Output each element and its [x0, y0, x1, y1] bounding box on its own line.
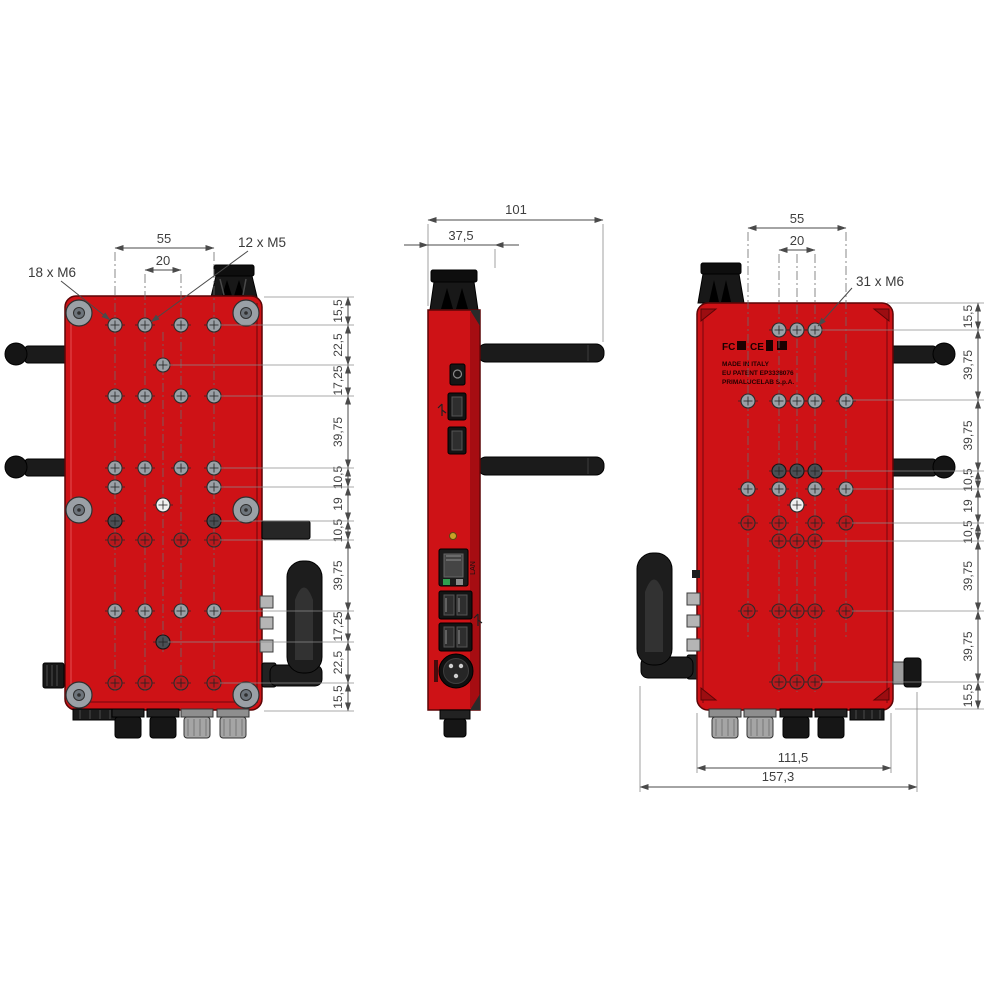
side-bracket	[262, 521, 310, 539]
dimension-label: 20	[790, 233, 804, 248]
dimension-label: 101	[505, 202, 527, 217]
usb-dual-block	[439, 623, 472, 651]
port-marking	[434, 660, 438, 682]
fcc-mark: FC	[722, 342, 735, 353]
knob-body	[211, 276, 257, 297]
dimension-label: 37,5	[448, 228, 473, 243]
cert-glyph	[737, 341, 746, 350]
bottom-connector-gray	[181, 709, 213, 738]
chain-dimension-label: 15,5	[331, 685, 345, 709]
bottom-connector-black	[112, 709, 144, 738]
bottom-connector-gray	[217, 709, 249, 738]
aux-port	[450, 364, 465, 385]
technical-drawing-canvas: LAN	[0, 0, 1000, 1000]
handle-ball	[933, 343, 955, 365]
back-view: FC CE MADE IN ITALY EU PATENT EP3338076 …	[637, 232, 955, 738]
bottom-connector-side	[440, 710, 470, 719]
usb-dual-block	[439, 591, 472, 619]
cert-glyph	[766, 340, 773, 351]
thread-callout-31xM6: 31 x M6	[856, 274, 904, 289]
chain-dimension-label: 39,75	[961, 561, 975, 591]
chain-dimension-label: 22,5	[331, 650, 345, 674]
power-pin	[459, 664, 463, 668]
antenna-highlight	[295, 588, 313, 661]
bottom-connector-gray	[709, 709, 741, 738]
side-nub	[692, 570, 700, 578]
knob-cap	[431, 270, 477, 282]
usb-slot	[452, 431, 462, 450]
handle-ball	[933, 456, 955, 478]
chain-dimension-label: 10,5	[331, 465, 345, 489]
chain-dimension-label: 10,5	[331, 518, 345, 542]
chain-dimension-label: 22,5	[331, 333, 345, 357]
power-connector-ring	[444, 659, 469, 684]
power-pin	[449, 664, 453, 668]
dimension-label: 157,3	[762, 769, 795, 784]
corner-bolt-center	[244, 693, 248, 697]
handle-rod-side	[478, 344, 604, 362]
chain-dimension-label: 10,5	[961, 520, 975, 544]
marking-company: PRIMALUCELAB S.p.A.	[722, 379, 794, 386]
knob-cap	[701, 263, 741, 274]
power-pin	[454, 674, 458, 678]
chain-dimension-label: 15,5	[961, 304, 975, 328]
lan-led-gray	[456, 579, 463, 585]
knob-cap	[214, 265, 254, 276]
handle-rod-side	[478, 457, 604, 475]
chain-dimension-label: 15,5	[961, 683, 975, 707]
marking-patent: EU PATENT EP3338076	[722, 370, 794, 377]
lan-led-green	[443, 579, 450, 585]
bottom-left-connector	[43, 663, 64, 688]
drawing-svg: LAN	[0, 0, 1000, 1000]
cert-glyph	[777, 341, 787, 350]
usb-slot	[452, 397, 462, 416]
chain-dimension-label: 39,75	[331, 560, 345, 590]
antenna-highlight	[645, 580, 663, 653]
thread-callout-12xM5: 12 x M5	[238, 235, 286, 250]
chain-dimension-label: 17,25	[331, 365, 345, 395]
chain-dimension-label: 19	[331, 497, 345, 511]
right-connector-body	[904, 658, 921, 687]
knob-body	[698, 274, 744, 303]
handle-rod	[890, 459, 936, 476]
handle-rod	[890, 346, 936, 363]
corner-bolt-center	[244, 508, 248, 512]
bottom-connector-side	[444, 719, 466, 737]
side-view: LAN	[428, 270, 604, 737]
bottom-strip	[850, 709, 884, 720]
handle-ball	[5, 456, 27, 478]
lan-label: LAN	[470, 561, 477, 575]
right-connector-flange	[893, 662, 904, 684]
handle-rod	[25, 346, 69, 363]
chain-dimension-label: 39,75	[331, 417, 345, 447]
power-led	[450, 533, 457, 540]
knob-body	[430, 282, 478, 310]
ce-mark: CE	[750, 342, 764, 353]
side-connector	[687, 593, 700, 605]
bottom-connector-gray	[744, 709, 776, 738]
dimension-label: 111,5	[778, 750, 809, 765]
chain-dimension-label: 15,5	[331, 299, 345, 323]
corner-bolt-center	[77, 311, 81, 315]
chain-dimension-label: 39,75	[961, 631, 975, 661]
marking-made-in: MADE IN ITALY	[722, 361, 770, 368]
handle-rod	[25, 459, 69, 476]
chain-dimension-label: 19	[961, 499, 975, 513]
corner-bolt-center	[244, 311, 248, 315]
thread-callout-18xM6: 18 x M6	[28, 265, 76, 280]
dimension-label: 20	[156, 253, 170, 268]
side-connector	[687, 639, 700, 651]
bottom-connector-black	[147, 709, 179, 738]
corner-bolt-center	[77, 508, 81, 512]
dimension-label: 55	[157, 231, 171, 246]
side-connector	[260, 617, 273, 629]
chain-dimension-label: 10,5	[961, 468, 975, 492]
dimension-label: 55	[790, 211, 804, 226]
lan-port-inner	[444, 554, 463, 577]
side-connector	[687, 615, 700, 627]
side-connector	[260, 596, 273, 608]
bottom-connector-black	[780, 709, 812, 738]
bottom-connector-black	[815, 709, 847, 738]
handle-ball	[5, 343, 27, 365]
corner-bolt-center	[77, 693, 81, 697]
chain-dimension-label: 39,75	[961, 420, 975, 450]
chain-dimension-label: 17,25	[331, 611, 345, 641]
chain-dimension-label: 39,75	[961, 350, 975, 380]
